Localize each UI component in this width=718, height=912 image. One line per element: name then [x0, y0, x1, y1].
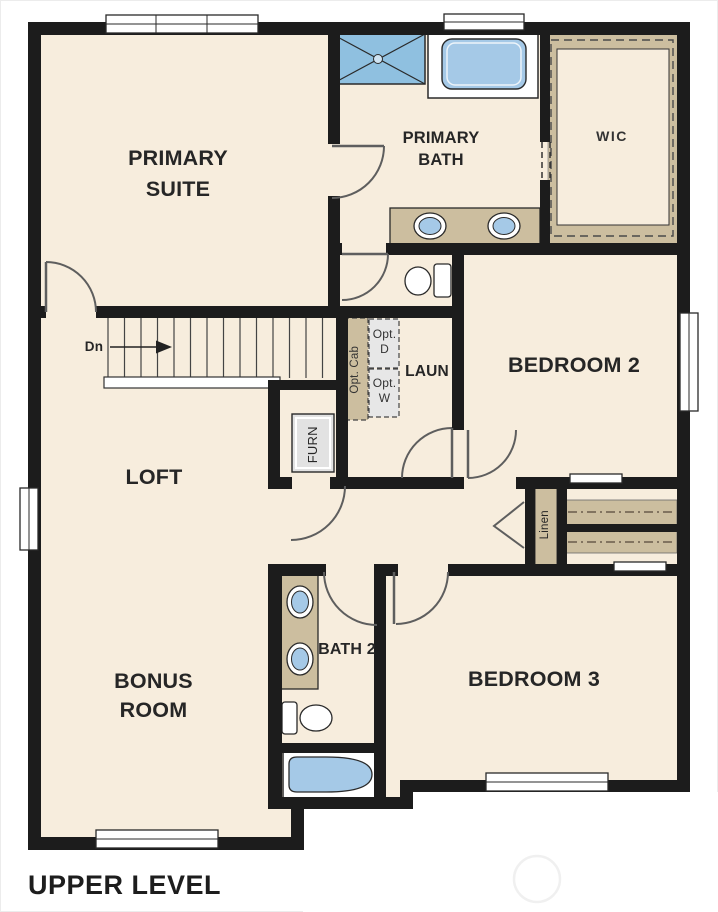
sink-basin-bowl — [292, 648, 309, 670]
wall-segment — [268, 380, 348, 390]
toilet-bowl — [405, 267, 431, 295]
footprint-mask — [412, 792, 718, 912]
wall-segment — [268, 380, 280, 489]
room-label-wic: WIC — [581, 127, 643, 146]
wall-segment — [540, 180, 550, 255]
sink-basin-bowl — [292, 591, 309, 613]
optional-washer-label: Opt. W — [369, 376, 400, 406]
bathtub-bath2 — [289, 757, 372, 792]
wall-segment — [268, 564, 282, 809]
room-label-bedroom-3: BEDROOM 3 — [434, 665, 634, 694]
optional-dryer-label: Opt. D — [369, 327, 400, 357]
bypass-closet-door — [614, 562, 666, 571]
wall-segment — [557, 477, 567, 568]
bathtub-primary — [442, 39, 526, 89]
optional-cabinet-label: Opt. Cab — [348, 330, 364, 410]
sink-basin-bowl — [493, 218, 515, 235]
wall-segment — [328, 22, 340, 144]
plan-title: UPPER LEVEL — [28, 867, 288, 903]
shower-drain — [374, 55, 383, 64]
wall-segment — [270, 743, 376, 753]
toilet-bowl — [300, 705, 332, 731]
toilet-tank — [434, 264, 451, 297]
bypass-closet-door — [570, 474, 622, 483]
wall-segment — [328, 243, 342, 255]
room-label-furnace: FURN — [304, 415, 322, 475]
wall-segment — [452, 243, 464, 430]
sink-basin-bowl — [419, 218, 441, 235]
room-label-bath-2: BATH 2 — [318, 639, 376, 661]
room-label-laundry: LAUN — [397, 362, 457, 383]
room-label-linen: Linen — [538, 495, 554, 555]
stair-railing — [104, 377, 280, 388]
wall-segment — [96, 306, 464, 318]
wall-segment — [386, 243, 690, 255]
room-label-primary-bath: PRIMARY BATH — [395, 127, 487, 172]
room-label-bedroom-2: BEDROOM 2 — [474, 351, 674, 380]
room-label-primary-suite: PRIMARY SUITE — [120, 143, 236, 205]
wall-segment — [330, 477, 464, 489]
wall-segment — [28, 306, 46, 318]
room-label-bonus-room: BONUS ROOM — [96, 667, 211, 725]
stair-direction-label: Dn — [80, 338, 108, 356]
floor-plan-image: PRIMARY SUITE PRIMARY BATH WIC BEDROOM 2… — [0, 0, 718, 912]
wall-segment — [540, 22, 550, 142]
room-label-loft: LOFT — [104, 463, 204, 492]
wall-segment — [336, 318, 348, 489]
wall-segment — [374, 564, 386, 797]
wall-segment — [268, 797, 413, 809]
wall-segment — [525, 477, 535, 568]
footprint-mask — [303, 809, 413, 912]
toilet-tank — [282, 702, 297, 734]
closet-divider-wall — [565, 524, 677, 532]
wall-segment — [28, 22, 41, 850]
wall-segment — [328, 196, 340, 318]
